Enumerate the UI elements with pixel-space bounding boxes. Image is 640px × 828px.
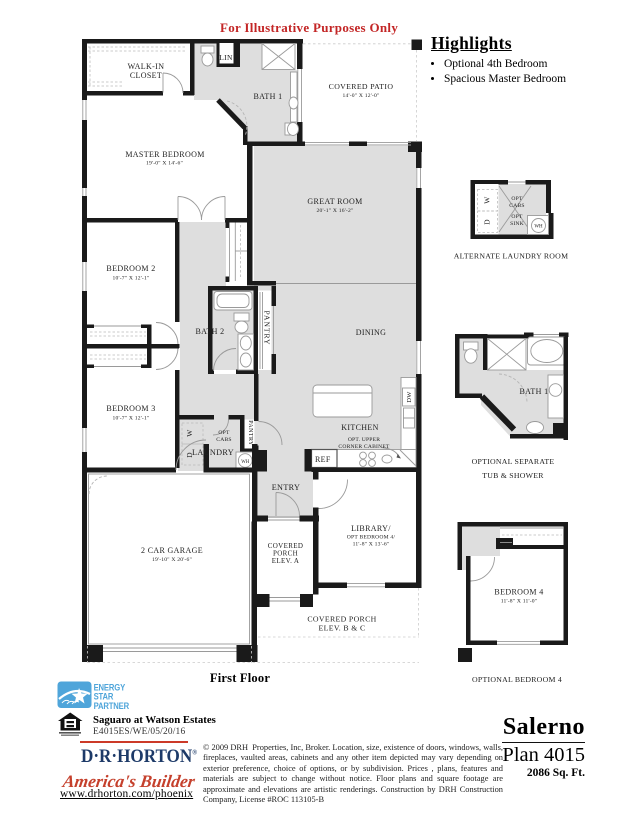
svg-text:DW: DW: [406, 391, 413, 403]
svg-text:OPTIONAL BEDROOM 4: OPTIONAL BEDROOM 4: [472, 675, 562, 684]
svg-text:ENTRY: ENTRY: [272, 483, 301, 492]
svg-text:LIBRARY/: LIBRARY/: [351, 524, 391, 533]
svg-text:BEDROOM 2: BEDROOM 2: [106, 264, 155, 273]
svg-text:BEDROOM 3: BEDROOM 3: [106, 404, 155, 413]
svg-text:TUB & SHOWER: TUB & SHOWER: [482, 471, 544, 480]
svg-text:DINING: DINING: [356, 328, 387, 337]
svg-text:OPTIONAL SEPARATE: OPTIONAL SEPARATE: [472, 457, 555, 466]
svg-text:BATH 2: BATH 2: [196, 327, 225, 336]
svg-text:COVERED PATIO: COVERED PATIO: [329, 82, 394, 91]
svg-text:REF: REF: [315, 455, 331, 464]
svg-text:14'-0" X 12'-0": 14'-0" X 12'-0": [343, 93, 380, 99]
svg-text:PARTNER: PARTNER: [94, 700, 130, 711]
svg-text:OPT: OPT: [511, 196, 523, 202]
svg-text:BATH 1: BATH 1: [520, 387, 549, 396]
svg-text:PANTRY: PANTRY: [263, 311, 272, 346]
svg-text:OPT: OPT: [218, 430, 230, 436]
svg-text:19'-0" X 14'-6": 19'-0" X 14'-6": [146, 161, 183, 167]
svg-text:WH: WH: [241, 460, 250, 465]
svg-text:GREAT ROOM: GREAT ROOM: [307, 197, 362, 206]
svg-text:PANTRY: PANTRY: [247, 420, 253, 446]
svg-text:OPT. UPPER: OPT. UPPER: [348, 437, 380, 443]
svg-text:COVERED PORCH: COVERED PORCH: [307, 615, 376, 624]
svg-text:10'-7" X 12'-1": 10'-7" X 12'-1": [113, 416, 150, 422]
svg-text:BEDROOM 4: BEDROOM 4: [494, 588, 543, 597]
svg-text:W: W: [185, 429, 194, 437]
svg-text:11'-8" X 11'-0": 11'-8" X 11'-0": [501, 599, 538, 605]
svg-text:ELEV. A: ELEV. A: [272, 557, 300, 565]
svg-text:10'-7" X 12'-1": 10'-7" X 12'-1": [113, 276, 150, 282]
svg-text:OPT BEDROOM 4/: OPT BEDROOM 4/: [347, 535, 396, 541]
svg-text:11'-8" X 13'-6": 11'-8" X 13'-6": [353, 542, 390, 548]
svg-text:ELEV. B & C: ELEV. B & C: [318, 624, 365, 633]
svg-text:CABS: CABS: [509, 203, 524, 209]
svg-text:WALK-IN: WALK-IN: [128, 62, 165, 71]
svg-text:SINK: SINK: [510, 221, 524, 227]
svg-text:CORNER CABINET: CORNER CABINET: [338, 444, 390, 450]
svg-text:MASTER BEDROOM: MASTER BEDROOM: [125, 150, 204, 159]
svg-text:WH: WH: [534, 225, 543, 230]
svg-text:LAUNDRY: LAUNDRY: [192, 448, 234, 457]
svg-text:KITCHEN: KITCHEN: [341, 423, 379, 432]
svg-text:CLOSET: CLOSET: [130, 71, 162, 80]
svg-text:CABS: CABS: [216, 437, 231, 443]
svg-text:D: D: [483, 219, 492, 225]
svg-text:OPT: OPT: [511, 214, 523, 220]
svg-text:20'-1" X 16'-2": 20'-1" X 16'-2": [317, 208, 354, 214]
svg-text:W: W: [483, 196, 492, 204]
svg-text:LIN: LIN: [219, 53, 233, 62]
svg-text:19'-10" X 20'-6": 19'-10" X 20'-6": [152, 557, 192, 563]
svg-text:2 CAR GARAGE: 2 CAR GARAGE: [141, 546, 203, 555]
svg-text:ALTERNATE LAUNDRY ROOM: ALTERNATE LAUNDRY ROOM: [454, 252, 569, 261]
svg-text:BATH 1: BATH 1: [254, 92, 283, 101]
